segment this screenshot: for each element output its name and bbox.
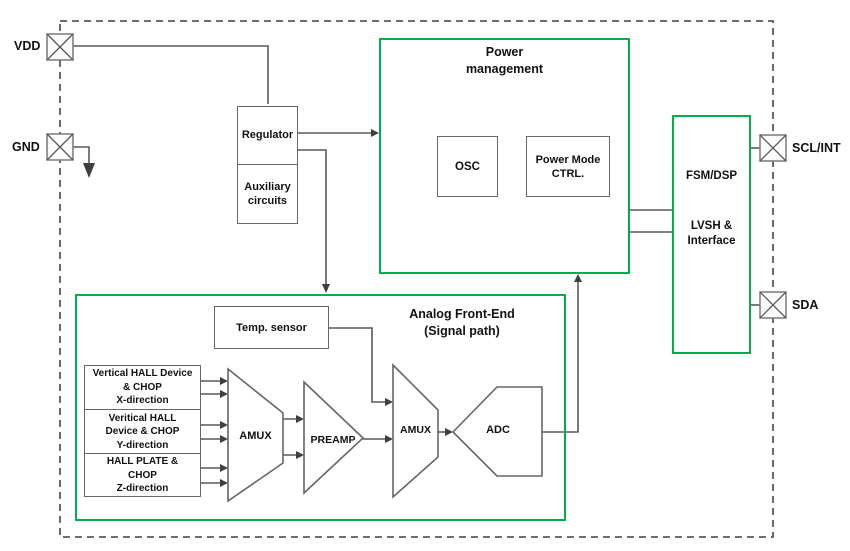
osc-label: OSC	[437, 136, 498, 197]
afe-title-line1: Analog Front-End	[409, 306, 515, 323]
adc-label: ADC	[468, 424, 528, 436]
power-title-line1: Power	[486, 44, 524, 61]
pmc-line2: CTRL.	[552, 167, 584, 181]
hall-y-line3: Y-direction	[117, 439, 169, 453]
hall-x-label: Vertical HALL Device & CHOP X-direction	[86, 366, 199, 409]
hall-y-label: Veritical HALL Device & CHOP Y-direction	[86, 411, 199, 453]
fsm-dsp-label: FSM/DSP	[672, 170, 751, 182]
hall-z-line3: Z-direction	[117, 482, 169, 496]
regulator-to-afe-wire	[298, 150, 326, 284]
vdd-to-regulator-wire	[73, 46, 268, 104]
auxiliary-line1: Auxiliary	[244, 180, 290, 194]
amux2-label: AMUX	[393, 424, 438, 436]
lvsh-line1: LVSH &	[691, 219, 732, 234]
lvsh-line2: Interface	[688, 234, 736, 249]
auxiliary-line2: circuits	[248, 194, 287, 208]
arrowhead-up	[574, 274, 582, 282]
hall-z-line2: CHOP	[128, 469, 157, 483]
sda-label: SDA	[792, 298, 818, 312]
gnd-down-arrow-icon	[83, 163, 95, 178]
afe-title-line2: (Signal path)	[424, 323, 500, 340]
preamp-label: PREAMP	[302, 434, 364, 446]
hall-x-line2: & CHOP	[123, 381, 162, 395]
power-title-line2: management	[466, 61, 543, 78]
hall-z-line1: HALL PLATE &	[107, 455, 178, 469]
temp-sensor-label: Temp. sensor	[214, 306, 329, 349]
amux1-label: AMUX	[228, 430, 283, 442]
hall-y-line2: Device & CHOP	[106, 425, 180, 439]
auxiliary-circuits-label: Auxiliary circuits	[238, 165, 297, 222]
block-diagram: VDD GND SCL/INT SDA Regulator Auxiliary …	[0, 0, 850, 551]
hall-x-line3: X-direction	[116, 394, 168, 408]
hall-y-line1: Veritical HALL	[109, 412, 177, 426]
hall-divider-1	[84, 409, 201, 410]
arrowhead-down	[322, 284, 330, 293]
gnd-label: GND	[12, 140, 40, 154]
afe-title: Analog Front-End (Signal path)	[382, 306, 542, 340]
scl-int-pin-icon	[760, 135, 786, 161]
vdd-pin-icon	[47, 34, 73, 60]
arrowhead-right	[371, 129, 379, 137]
vdd-label: VDD	[14, 39, 40, 53]
gnd-pin-icon	[47, 134, 73, 160]
power-mode-ctrl-label: Power Mode CTRL.	[526, 136, 610, 197]
regulator-label: Regulator	[238, 106, 297, 164]
lvsh-interface-label: LVSH & Interface	[672, 219, 751, 249]
sda-pin-icon	[760, 292, 786, 318]
power-management-title: Power management	[379, 44, 630, 78]
hall-z-label: HALL PLATE & CHOP Z-direction	[86, 455, 199, 496]
gnd-stub-wire	[73, 147, 89, 163]
hall-x-line1: Vertical HALL Device	[93, 367, 193, 381]
pmc-line1: Power Mode	[536, 153, 601, 167]
hall-divider-2	[84, 453, 201, 454]
scl-int-label: SCL/INT	[792, 141, 841, 155]
